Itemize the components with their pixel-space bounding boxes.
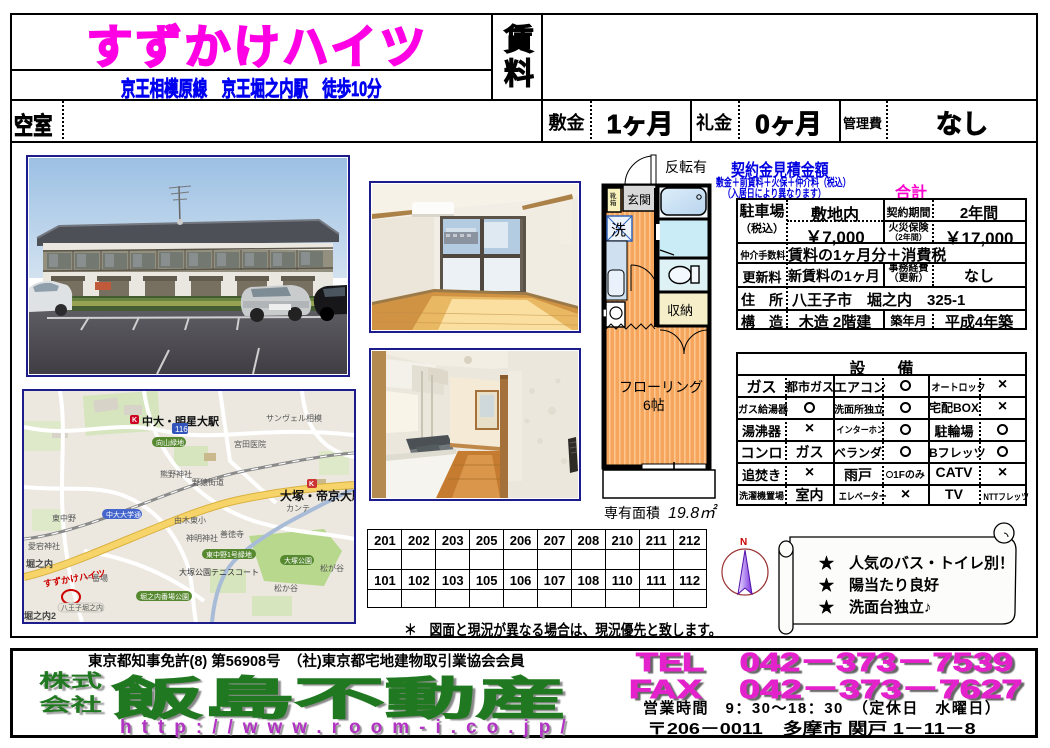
svg-text:フローリング: フローリング: [619, 379, 703, 395]
svg-text:サンヴェル相模: サンヴェル相模: [266, 413, 322, 423]
svg-text:★ 陽当たり良好: ★ 陽当たり良好: [819, 576, 939, 594]
svg-text:N: N: [740, 537, 747, 548]
svg-text:洗: 洗: [611, 222, 626, 239]
svg-text:堀之内2: 堀之内2: [24, 610, 56, 621]
svg-text:堀之内: 堀之内: [26, 558, 53, 569]
svg-text:収納: 収納: [667, 303, 693, 318]
svg-text:八王子堀之内: 八王子堀之内: [61, 603, 103, 612]
svg-text:善徳寺: 善徳寺: [220, 529, 244, 539]
svg-text:★ 洗面台独立♪: ★ 洗面台独立♪: [819, 598, 932, 616]
svg-text:堀之内番場公園: 堀之内番場公園: [140, 592, 189, 601]
svg-text:由木東小: 由木東小: [174, 515, 206, 525]
svg-text:19.8㎡: 19.8㎡: [668, 504, 718, 522]
svg-text:松か谷: 松か谷: [274, 583, 298, 593]
svg-text:野猿街道: 野猿街道: [192, 477, 224, 487]
svg-text:玄関: 玄関: [627, 192, 651, 207]
svg-text:宮田医院: 宮田医院: [234, 439, 266, 449]
svg-text:K: K: [132, 417, 137, 424]
svg-text:★ 人気のバス・トイレ別！: ★ 人気のバス・トイレ別！: [819, 554, 1014, 572]
svg-text:K: K: [309, 481, 314, 488]
svg-text:6帖: 6帖: [643, 397, 665, 413]
svg-text:中大大学通: 中大大学通: [106, 510, 141, 519]
svg-text:箱: 箱: [610, 198, 617, 207]
svg-text:専有面積: 専有面積: [604, 505, 660, 521]
svg-text:靴: 靴: [610, 191, 617, 200]
svg-text:愛宕神社: 愛宕神社: [28, 541, 60, 551]
svg-text:神明神社: 神明神社: [186, 533, 218, 543]
svg-text:116: 116: [175, 425, 188, 434]
svg-text:反転有: 反転有: [665, 159, 707, 175]
svg-text:カンテ: カンテ: [286, 504, 310, 513]
svg-text:向山緑地: 向山緑地: [156, 438, 184, 447]
svg-text:熊野神社: 熊野神社: [160, 469, 192, 479]
svg-text:東中野: 東中野: [52, 513, 76, 523]
svg-text:大塚・帝京大駅: 大塚・帝京大駅: [280, 488, 354, 503]
svg-text:大塚公園テニスコート: 大塚公園テニスコート: [179, 567, 259, 577]
svg-text:東中野1号緑地: 東中野1号緑地: [206, 550, 252, 559]
svg-text:松が谷: 松が谷: [320, 563, 344, 573]
svg-text:大塚公園: 大塚公園: [284, 556, 312, 565]
